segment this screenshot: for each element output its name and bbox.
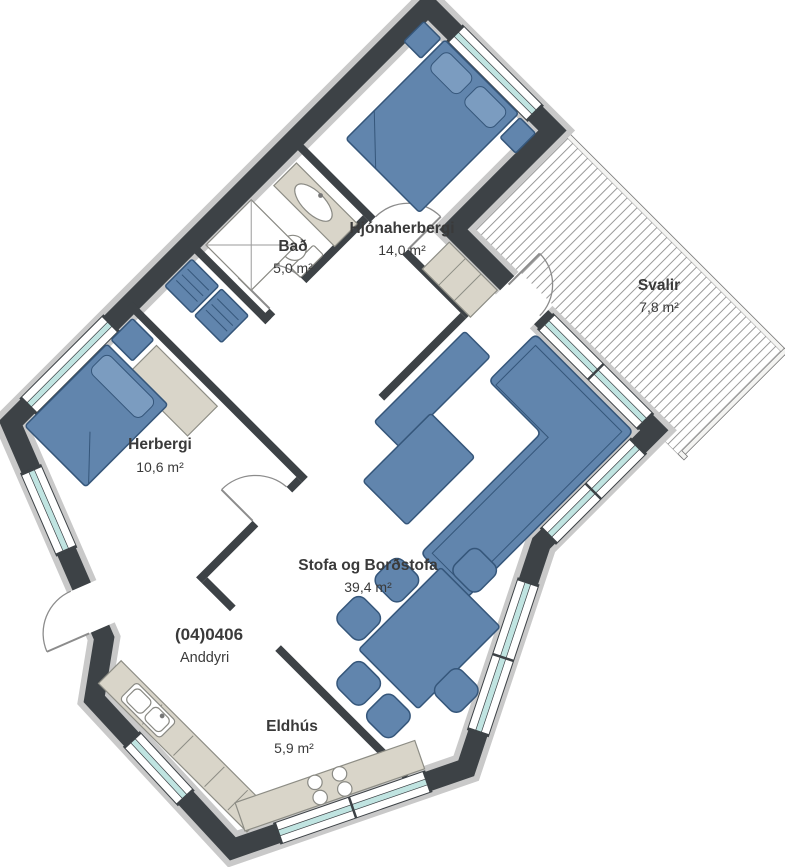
label-anddyri: Anddyri <box>180 650 229 666</box>
label-svalir: Svalir <box>638 277 680 294</box>
area-eldhus: 5,9 m² <box>274 740 314 756</box>
label-eldhus: Eldhús <box>266 718 318 735</box>
area-bad: 5,0 m² <box>273 260 313 276</box>
label-bad: Bað <box>278 238 307 255</box>
label-herbergi: Herbergi <box>128 436 192 453</box>
area-stofa: 39,4 m² <box>344 579 392 595</box>
area-herbergi: 10,6 m² <box>136 459 184 475</box>
floor-plan-canvas: Hjónaherbergi 14,0 m² Bað 5,0 m² Svalir … <box>0 0 785 867</box>
label-hjonaherbergi: Hjónaherbergi <box>349 220 454 237</box>
area-hjonaherbergi: 14,0 m² <box>378 242 426 258</box>
plan-rotated-group <box>0 0 785 867</box>
unit-number: (04)0406 <box>175 625 243 644</box>
area-svalir: 7,8 m² <box>639 299 679 315</box>
label-stofa: Stofa og Borðstofa <box>298 557 438 574</box>
floor-plan-page: Hjónaherbergi 14,0 m² Bað 5,0 m² Svalir … <box>0 0 785 867</box>
